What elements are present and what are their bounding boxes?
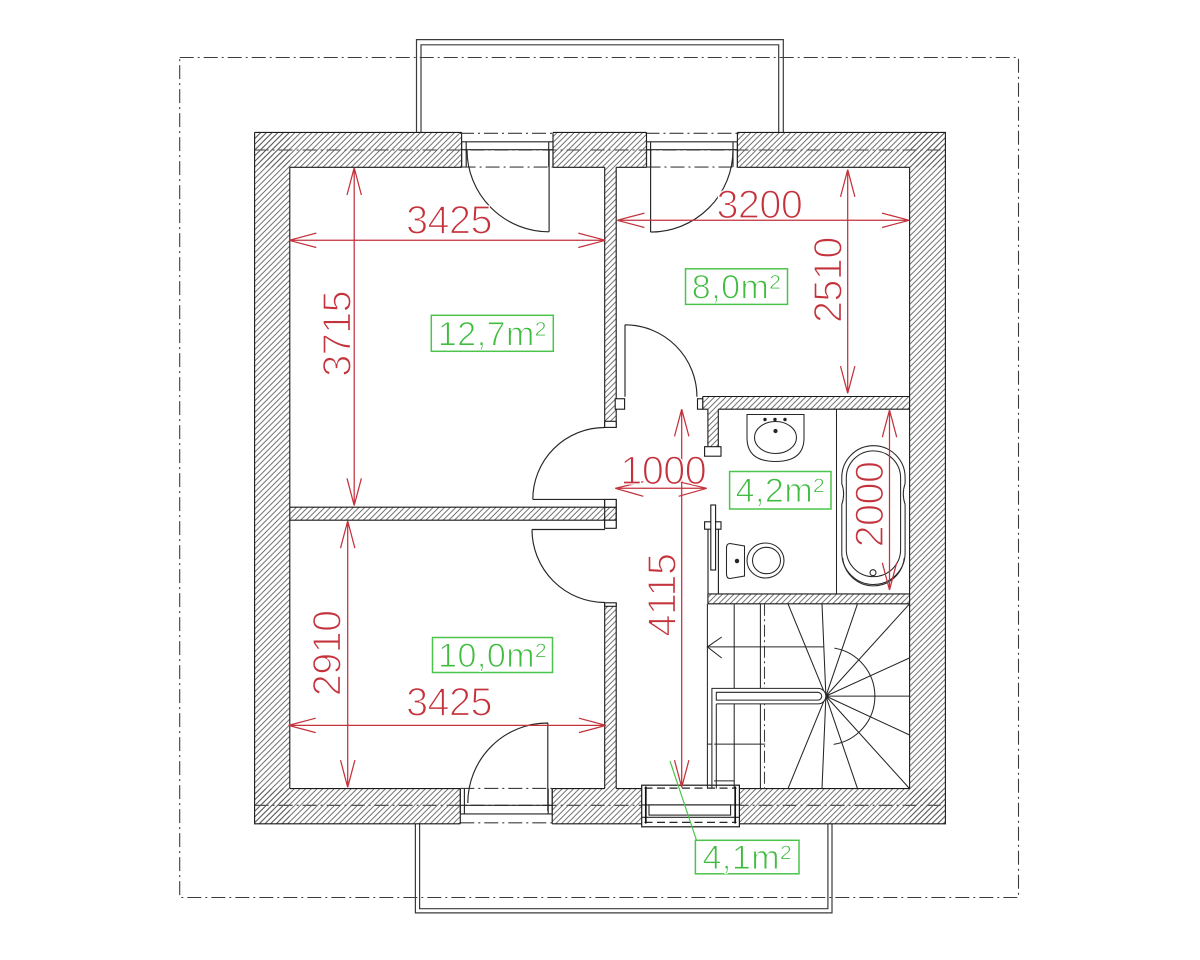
svg-text:4,2m²: 4,2m² [736, 472, 825, 510]
svg-text:2910: 2910 [306, 610, 350, 696]
svg-text:2000: 2000 [848, 462, 892, 548]
svg-text:3425: 3425 [406, 199, 492, 243]
svg-text:4,1m²: 4,1m² [702, 839, 791, 877]
svg-text:3200: 3200 [716, 183, 802, 227]
svg-text:12,7m²: 12,7m² [438, 315, 547, 353]
svg-text:8,0m²: 8,0m² [692, 269, 781, 307]
svg-text:3425: 3425 [406, 681, 492, 725]
svg-text:2510: 2510 [807, 237, 851, 323]
svg-text:10,0m²: 10,0m² [438, 637, 547, 675]
svg-text:4115: 4115 [641, 554, 685, 637]
svg-text:3715: 3715 [316, 291, 360, 377]
svg-text:1000: 1000 [620, 449, 706, 493]
